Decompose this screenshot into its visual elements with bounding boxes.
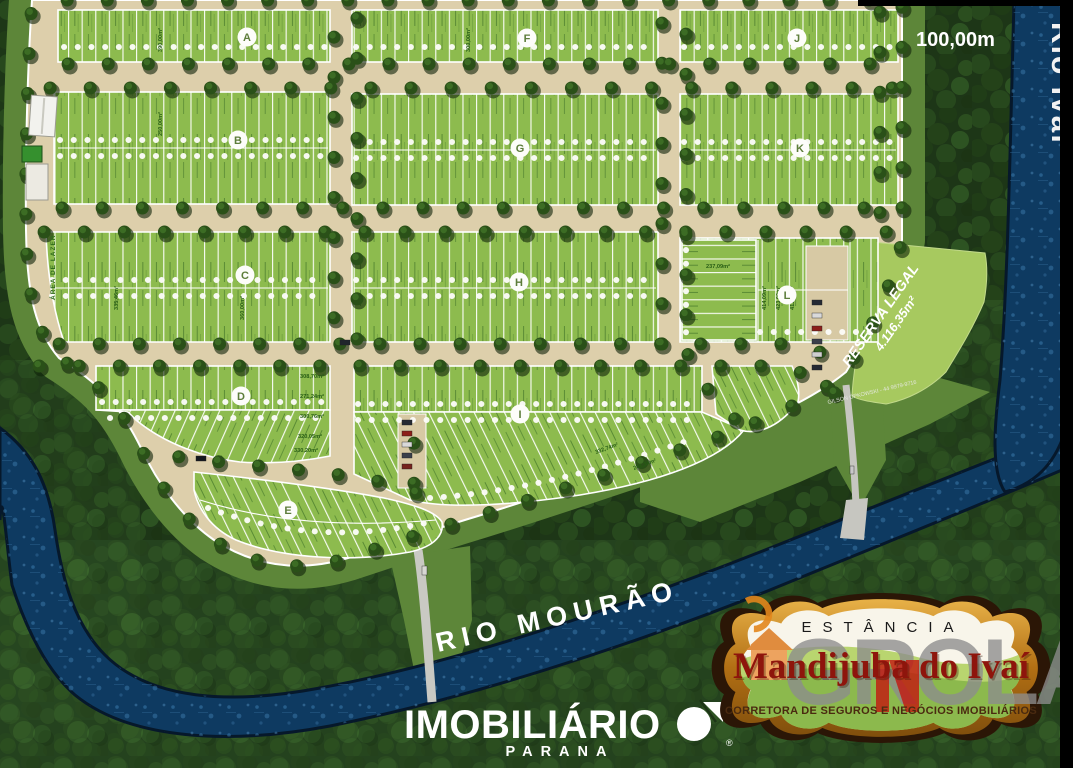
imobiliario-o-icon — [677, 707, 711, 741]
block-marker-d: D — [232, 387, 251, 406]
lot-area-label: 360,00m² — [239, 296, 246, 320]
car — [812, 352, 822, 357]
block-marker-b: B — [229, 131, 248, 150]
lot-area-label: 330,20m² — [294, 447, 318, 454]
car — [422, 566, 427, 575]
block-letter: D — [237, 391, 245, 403]
block-letter: F — [524, 33, 531, 45]
car — [402, 464, 412, 469]
block-marker-c: C — [236, 266, 255, 285]
block-letter: C — [241, 270, 249, 282]
car — [196, 456, 206, 461]
car — [402, 420, 412, 425]
block-letter: B — [234, 135, 242, 147]
block-marker-j: J — [788, 29, 807, 48]
block-marker-g: G — [511, 139, 530, 158]
car — [402, 453, 412, 458]
estancia-label: ESTÂNCIA — [801, 619, 964, 636]
leisure-area-label: ÁREA DE LAZER — [48, 235, 57, 300]
lot-area-label: 335,46m² — [113, 286, 120, 310]
parana-label: PARANA — [506, 744, 615, 760]
block-marker-h: H — [510, 273, 529, 292]
lot-area-label: 271,24m² — [300, 393, 324, 400]
lot-area-label: 320,05m² — [298, 433, 322, 440]
block-marker-i: I — [511, 405, 530, 424]
block-letter: I — [518, 409, 521, 421]
block-marker-e: E — [279, 501, 298, 520]
lot-area-label: 414,09m² — [761, 286, 768, 310]
block-letter: K — [796, 143, 804, 155]
car — [812, 326, 822, 331]
lot-area-label: 300,76m² — [300, 413, 324, 420]
block-a-lots — [58, 10, 330, 62]
block-marker-a: A — [238, 28, 257, 47]
block-marker-f: F — [518, 29, 537, 48]
block-letter: G — [516, 143, 525, 155]
car — [812, 365, 822, 370]
block-marker-l: L — [778, 286, 797, 305]
lot-area-label: 308,70m² — [300, 373, 324, 380]
block-c-lots — [46, 232, 330, 342]
estate-name-label: Mandijuba do Ivaí — [733, 646, 1030, 687]
block-f-lots — [352, 10, 658, 62]
lot-area-label: 237,09m² — [706, 263, 730, 270]
block-letter: A — [243, 32, 251, 44]
car — [812, 339, 822, 344]
block-letter: H — [515, 277, 523, 289]
car — [812, 313, 822, 318]
block-letter: E — [284, 505, 291, 517]
block-marker-k: K — [791, 139, 810, 158]
imobiliario-wordmark: IMOBILIÁRIO — [404, 702, 661, 747]
car — [402, 431, 412, 436]
scale-label: 100,00m — [916, 29, 995, 51]
block-letter: J — [794, 33, 800, 45]
car — [402, 442, 412, 447]
site-plan-map: 100,00m Rio Ivaí RIO MOURÃO RESERVA LEGA… — [0, 0, 1073, 768]
badge-tagline: CORRETORA DE SEGUROS E NEGÓCIOS IMOBILIÁ… — [725, 704, 1037, 717]
block-l-left-column — [682, 240, 756, 340]
car — [340, 340, 350, 345]
block-letter: L — [784, 290, 791, 302]
registered-mark: ® — [726, 738, 733, 748]
map-canvas: 100,00m Rio Ivaí RIO MOURÃO RESERVA LEGA… — [0, 0, 1073, 768]
lot-area-label: 390,00m² — [157, 28, 164, 52]
lot-area-label: 300,00m² — [465, 28, 472, 52]
lot-area-label: 250,00m² — [157, 112, 164, 136]
car — [850, 466, 854, 474]
block-h-lots — [352, 232, 658, 342]
car — [812, 300, 822, 305]
